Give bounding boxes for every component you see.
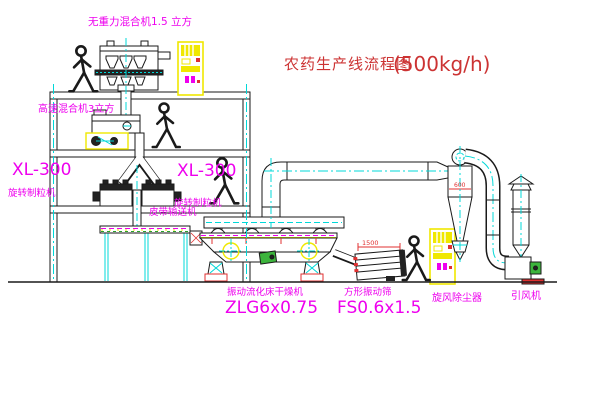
indicator-light-icon: [448, 245, 452, 249]
label-sieve-model: FS0.6x1.5: [337, 298, 421, 318]
cad-drawing-canvas: 农药生产线流程图 (500kg/h) 无重力混合机1.5 立方 高速混合机3立方…: [0, 0, 600, 403]
dimension-cyclone: 600: [454, 182, 466, 189]
indicator-light-icon: [196, 58, 200, 62]
label-granulator-right-model: XL-300: [177, 161, 236, 181]
process-flow-diagram: 农药生产线流程图 (500kg/h) 无重力混合机1.5 立方 高速混合机3立方…: [0, 0, 600, 403]
control-cabinet-top: [178, 42, 203, 95]
dryer-discharge-chute: [334, 253, 357, 263]
label-dryer-name: 振动流化床干燥机: [227, 286, 304, 298]
page-title-capacity: (500kg/h): [393, 52, 490, 76]
dimension-sieve: 1500: [362, 239, 379, 247]
fluid-bed-dryer: [190, 217, 344, 281]
building-floor2-slab: [50, 150, 250, 157]
sieve-support: [386, 276, 395, 281]
vibrating-sieve: [353, 243, 407, 281]
label-granulator-left-model: XL-300: [12, 160, 71, 180]
control-cabinet-right: [430, 229, 455, 284]
label-sieve-name: 方形振动筛: [344, 286, 392, 298]
label-gravity-mixer: 无重力混合机1.5 立方: [88, 15, 192, 28]
vibration-motor: [259, 251, 276, 264]
label-cyclone: 旋风除尘器: [432, 291, 482, 304]
person-figure-floor2: [153, 104, 180, 148]
induced-draft-fan: [505, 257, 544, 284]
cabinet-glyph-icon: [437, 263, 441, 270]
belt-conveyor: [100, 226, 190, 233]
label-fan: 引风机: [511, 289, 541, 302]
label-high-speed-mixer: 高速混合机3立方: [38, 102, 114, 115]
granulator-left: [93, 180, 132, 206]
cabinet-glyph-icon: [185, 76, 189, 83]
conveyor-legs: [105, 233, 187, 281]
label-belt-conveyor: 皮带输送机: [149, 206, 197, 218]
building-roof-slab: [50, 92, 250, 99]
label-granulator-left-name: 旋转制粒机: [8, 187, 56, 199]
label-dryer-model: ZLG6x0.75: [225, 298, 318, 318]
person-figure-roof: [69, 46, 97, 91]
